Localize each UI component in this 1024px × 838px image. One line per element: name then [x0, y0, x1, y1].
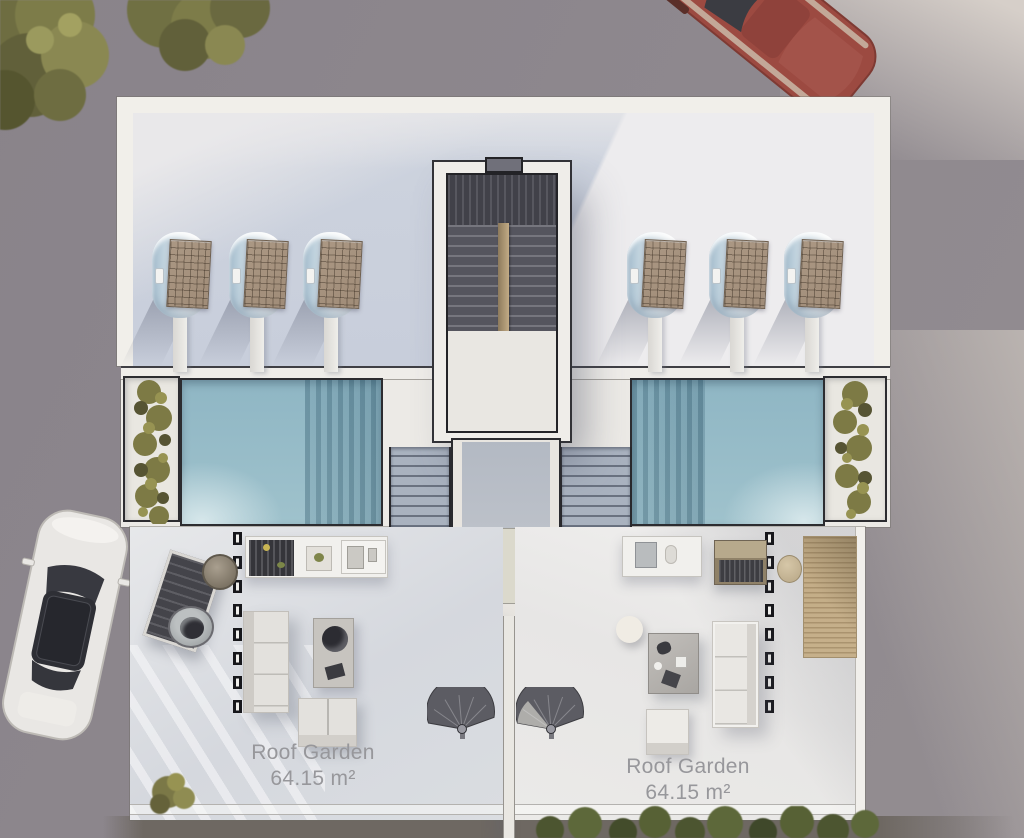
- sofa-long-right: [713, 622, 758, 727]
- stair-upper-landing: [448, 175, 556, 225]
- planter-plants-icon: [819, 378, 889, 524]
- solar-panel-icon: [723, 239, 769, 309]
- heater-pipe: [173, 312, 187, 372]
- pergola-dashed-line-left: [233, 532, 242, 716]
- table-bowl: [180, 617, 204, 639]
- bbq-grill-icon: [719, 560, 763, 582]
- pool-right: [630, 378, 825, 526]
- stair-well: [446, 173, 558, 433]
- heater-pipe: [324, 312, 338, 372]
- table-item: [654, 662, 662, 670]
- tank-fitting: [232, 268, 241, 284]
- sink-unit: [341, 540, 386, 574]
- dining-table-right: [648, 633, 699, 694]
- heater-pipe: [648, 312, 662, 372]
- core-floor: [462, 442, 550, 528]
- grill-item: [277, 562, 285, 568]
- pool-shallow-highlight: [632, 380, 823, 524]
- garden-area: 64.15 m²: [223, 766, 403, 792]
- solar-water-heater: [229, 232, 285, 372]
- sink-basin: [635, 542, 657, 568]
- table-item: [675, 656, 687, 668]
- roof-garden-label-left: Roof Garden 64.15 m²: [223, 740, 403, 792]
- tank-fitting: [306, 268, 315, 284]
- outdoor-kitchen-right: [622, 536, 702, 577]
- wood-deck: [803, 536, 857, 658]
- dish-tray: [665, 545, 677, 564]
- sink-basin: [347, 546, 364, 569]
- terrace-plant-icon: [146, 770, 202, 818]
- stairs-to-pool-left: [389, 447, 451, 527]
- garden-title: Roof Garden: [598, 754, 778, 780]
- sink-basin-small: [368, 548, 377, 562]
- tank-fitting: [630, 268, 639, 284]
- stepping-stone: [777, 555, 802, 583]
- tank-fitting: [155, 268, 164, 284]
- solar-panel-icon: [798, 239, 844, 309]
- stair-wood-railing: [498, 223, 509, 333]
- solar-water-heater: [784, 232, 840, 372]
- pool-shallow-highlight: [182, 380, 381, 524]
- tank-fitting: [787, 268, 796, 284]
- pool-left: [180, 378, 383, 526]
- round-tray: [322, 626, 348, 652]
- bbq-grill-icon: [249, 540, 294, 576]
- stair-lower-landing: [448, 331, 556, 431]
- outdoor-kitchen-left: [245, 536, 388, 578]
- garden-area: 64.15 m²: [598, 780, 778, 806]
- herb-icon: [314, 553, 324, 562]
- planter-plants-icon: [119, 378, 185, 524]
- stairwell-tower: [432, 160, 572, 443]
- bottom-shrubs-icon: [505, 806, 895, 838]
- stairs-to-pool-right: [560, 447, 632, 527]
- roof-plan-render: Roof Garden 64.15 m² Roof Garden 64.15 m…: [0, 0, 1024, 838]
- solar-water-heater: [303, 232, 359, 372]
- chair-backrest: [647, 743, 688, 754]
- chair-right: [646, 709, 689, 755]
- solar-water-heater: [709, 232, 765, 372]
- cutting-board: [306, 546, 332, 571]
- solar-panel-icon: [317, 239, 363, 309]
- round-glass-table: [168, 606, 214, 648]
- table-item: [655, 640, 672, 656]
- solar-panel-icon: [166, 239, 212, 309]
- party-wall: [503, 616, 515, 838]
- sofa-long-left: [243, 611, 289, 713]
- solar-water-heater: [627, 232, 683, 372]
- table-item: [661, 670, 681, 689]
- sofa-backrest: [244, 612, 254, 712]
- sofa-backrest: [747, 624, 756, 725]
- heater-pipe: [250, 312, 264, 372]
- solar-water-heater: [152, 232, 208, 372]
- solar-panel-icon: [641, 239, 687, 309]
- book: [325, 663, 346, 680]
- garden-title: Roof Garden: [223, 740, 403, 766]
- round-pouf: [616, 616, 643, 643]
- coffee-table-left: [313, 618, 354, 688]
- roof-garden-label-right: Roof Garden 64.15 m²: [598, 754, 778, 806]
- stairwell-vent: [485, 157, 523, 173]
- spiral-staircase-right: [516, 687, 586, 742]
- planter-left: [123, 376, 180, 522]
- solar-panel-icon: [243, 239, 289, 309]
- planter-right: [823, 376, 887, 522]
- spiral-staircase-left: [427, 687, 497, 742]
- rattan-side-table: [202, 554, 238, 590]
- tank-fitting: [712, 268, 721, 284]
- bbq-island-right: [714, 540, 767, 585]
- grill-item: [263, 544, 270, 551]
- heater-pipe: [805, 312, 819, 372]
- heater-pipe: [730, 312, 744, 372]
